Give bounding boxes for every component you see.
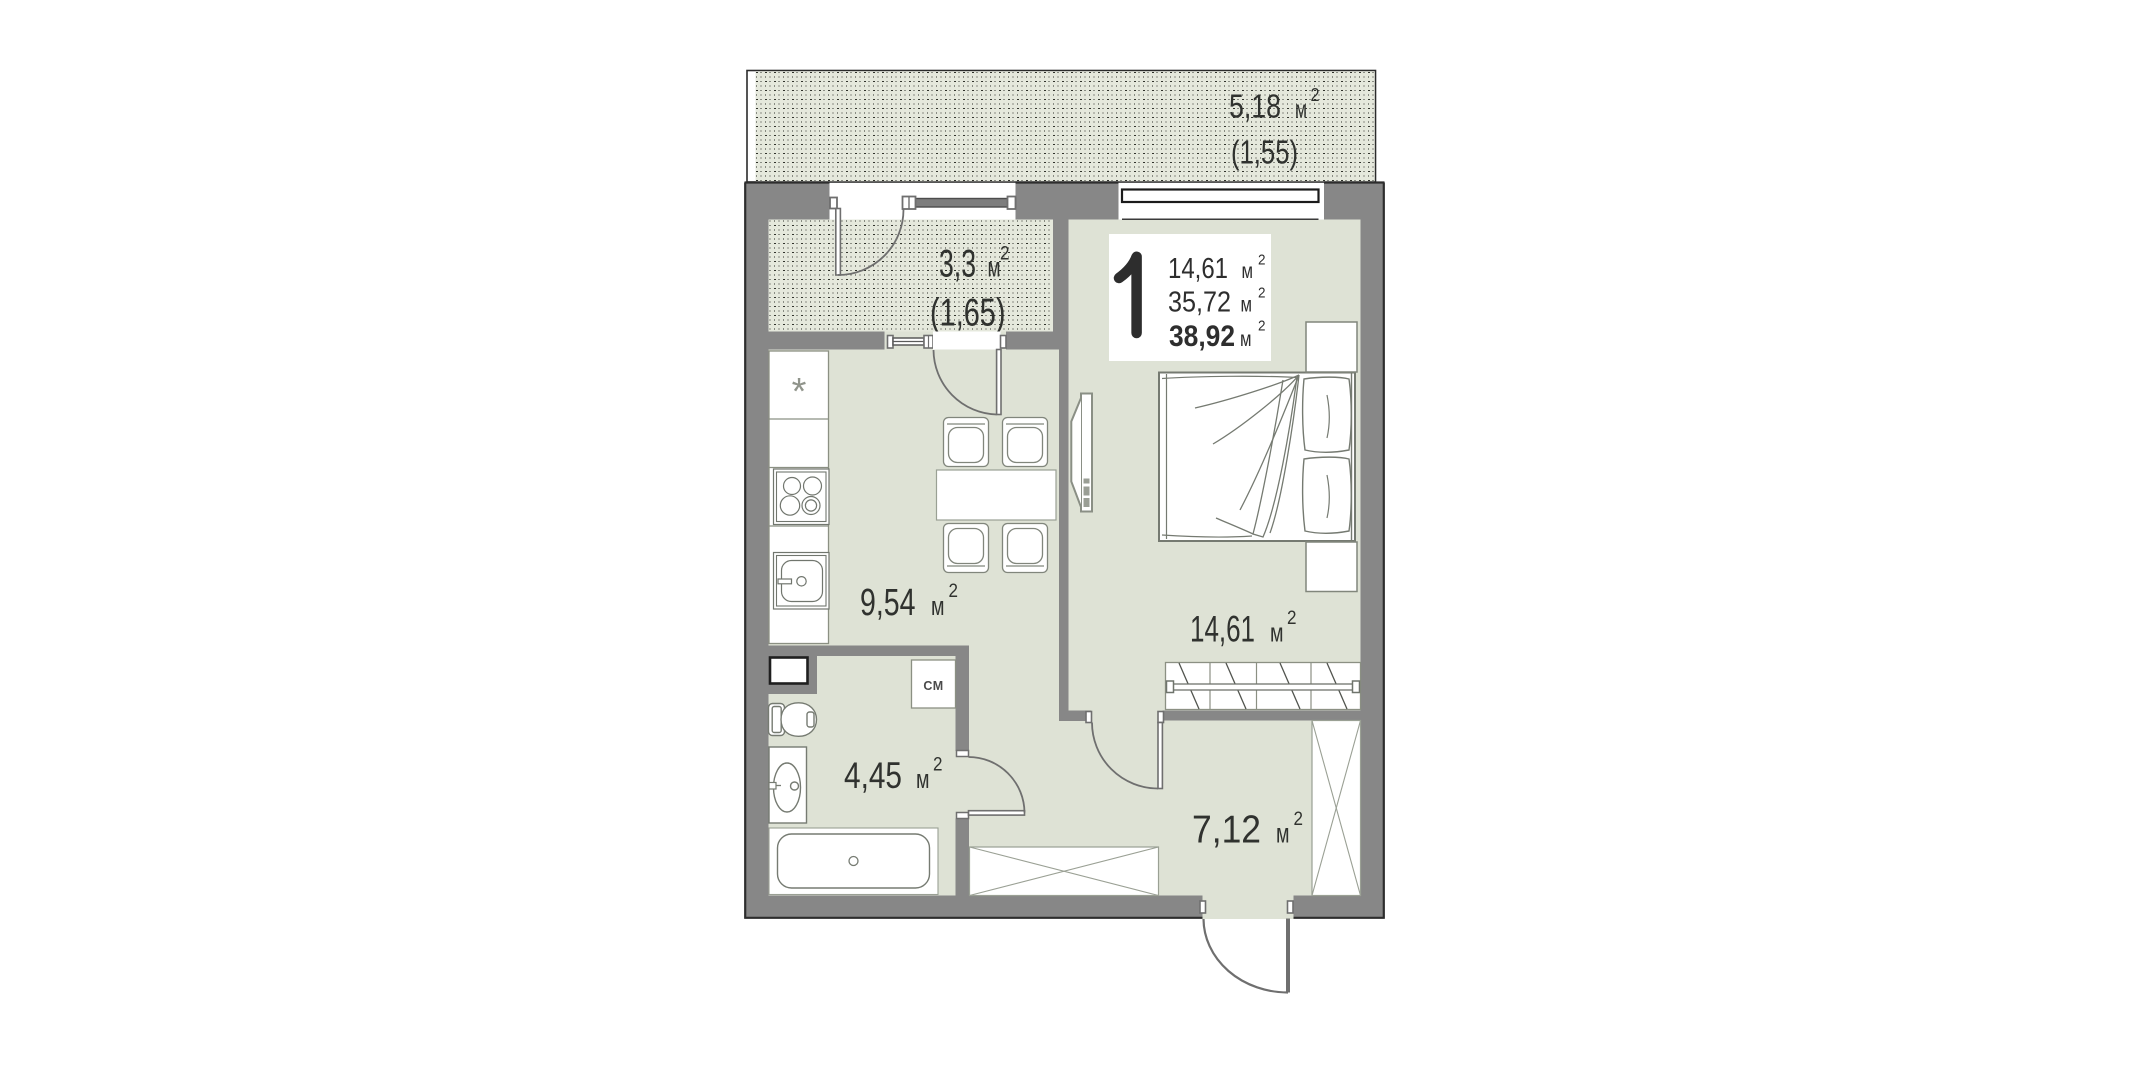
svg-text:м: м bbox=[931, 591, 945, 621]
svg-text:м: м bbox=[988, 252, 1001, 283]
svg-text:*: * bbox=[792, 371, 807, 413]
svg-text:7,12: 7,12 bbox=[1192, 809, 1261, 852]
svg-text:(1,65): (1,65) bbox=[930, 292, 1006, 335]
svg-text:38,92: 38,92 bbox=[1169, 320, 1235, 353]
svg-text:2: 2 bbox=[1258, 252, 1266, 269]
svg-text:м: м bbox=[1270, 618, 1284, 648]
svg-text:35,72: 35,72 bbox=[1168, 286, 1231, 318]
svg-text:2: 2 bbox=[1000, 244, 1010, 265]
svg-text:14,61: 14,61 bbox=[1168, 253, 1228, 285]
svg-text:2: 2 bbox=[1258, 318, 1266, 335]
svg-text:2: 2 bbox=[949, 581, 959, 602]
svg-text:м: м bbox=[1242, 259, 1254, 283]
svg-text:2: 2 bbox=[1294, 809, 1304, 830]
svg-text:4,45: 4,45 bbox=[844, 755, 902, 796]
svg-text:2: 2 bbox=[1311, 85, 1320, 105]
svg-text:2: 2 bbox=[1258, 285, 1266, 302]
svg-text:м: м bbox=[1276, 818, 1290, 849]
svg-text:5,18: 5,18 bbox=[1229, 88, 1281, 125]
svg-text:14,61: 14,61 bbox=[1190, 608, 1255, 650]
svg-text:2: 2 bbox=[933, 755, 943, 776]
svg-text:СМ: СМ bbox=[923, 679, 943, 693]
svg-text:м: м bbox=[1241, 292, 1253, 316]
svg-text:м: м bbox=[1295, 97, 1307, 124]
svg-text:(1,55): (1,55) bbox=[1231, 134, 1298, 171]
svg-text:м: м bbox=[916, 764, 930, 794]
svg-text:3,3: 3,3 bbox=[939, 243, 976, 286]
svg-text:9,54: 9,54 bbox=[860, 582, 916, 624]
svg-text:м: м bbox=[1240, 327, 1252, 351]
svg-text:2: 2 bbox=[1287, 608, 1297, 629]
